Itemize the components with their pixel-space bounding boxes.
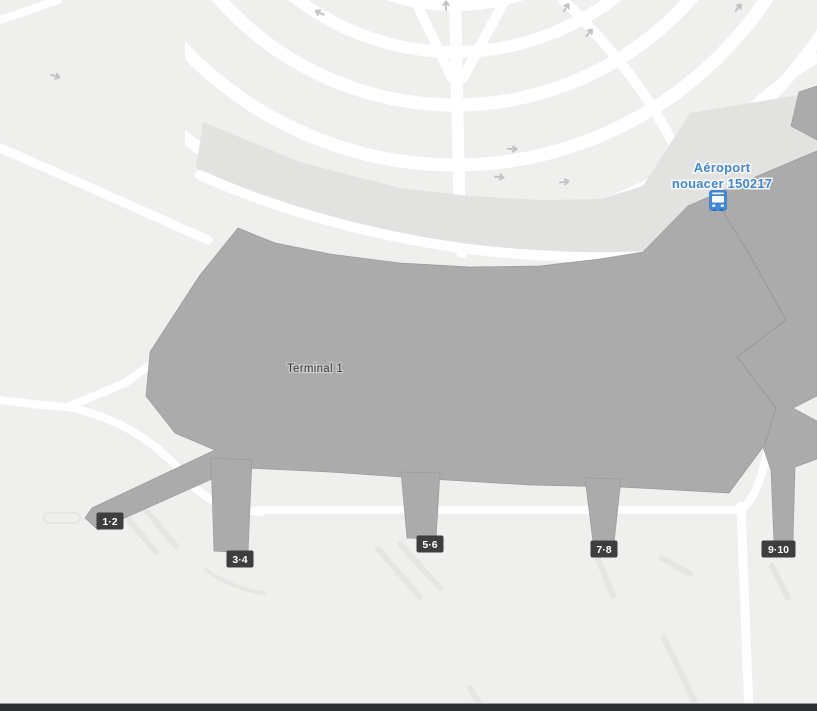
gate-label-3-4: 3·4 [227,551,254,568]
gate-label-1-2: 1·2 [97,513,124,530]
svg-text:7·8: 7·8 [596,544,611,556]
svg-text:3·4: 3·4 [232,554,247,566]
transit-station-name-line1[interactable]: Aéroport [694,160,751,175]
terminal-name-label: Terminal 1 [287,363,343,375]
gate-label-7-8: 7·8 [591,541,618,558]
gate-label-5-6: 5·6 [417,536,444,553]
bus-station-icon[interactable] [709,190,727,211]
bottom-panel-edge [0,703,817,711]
transit-station-name-line2[interactable]: nouacer 150217 [672,176,772,191]
map-viewport[interactable]: Terminal 1 Aéroport nouacer 150217 1·2 3… [0,0,817,711]
map-canvas[interactable]: Terminal 1 Aéroport nouacer 150217 1·2 3… [0,0,817,711]
svg-text:9·10: 9·10 [768,544,789,556]
svg-text:1·2: 1·2 [102,516,117,528]
svg-text:5·6: 5·6 [422,539,437,551]
gate-label-9-10: 9·10 [762,541,796,558]
